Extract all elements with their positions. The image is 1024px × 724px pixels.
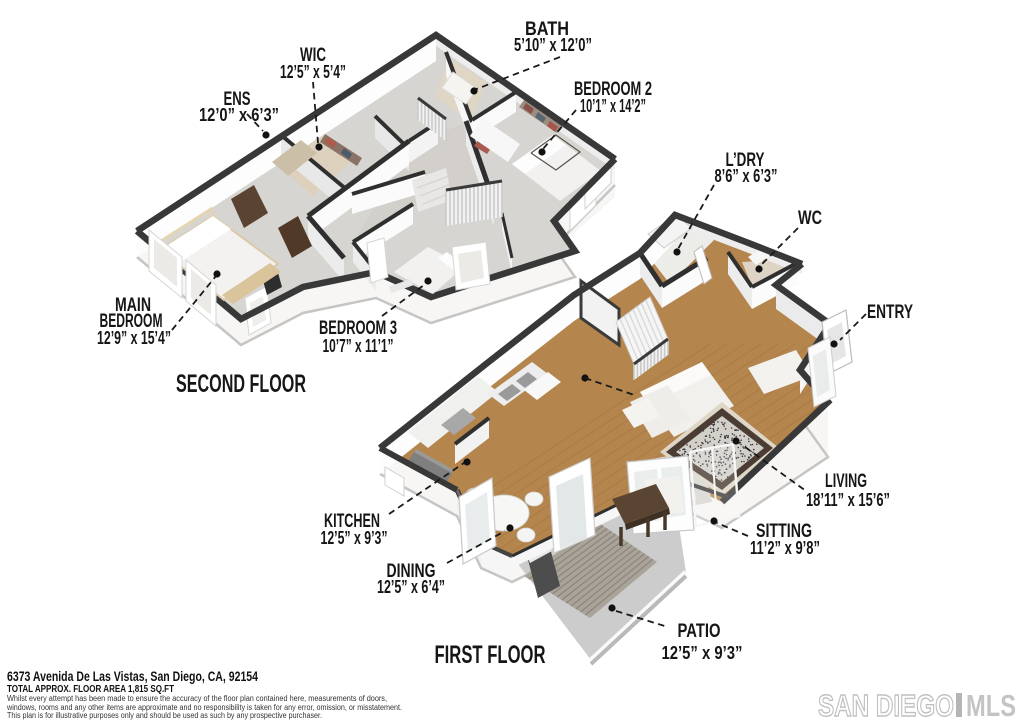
svg-text:PATIO: PATIO xyxy=(678,621,721,642)
svg-text:This plan is for illustrative: This plan is for illustrative purposes o… xyxy=(7,711,322,720)
svg-text:12’5” x 6’4”: 12’5” x 6’4” xyxy=(377,577,445,597)
svg-text:6373 Avenida De Las Vistas, Sa: 6373 Avenida De Las Vistas, San Diego, C… xyxy=(7,668,258,684)
svg-text:8’6” x 6’3”: 8’6” x 6’3” xyxy=(715,166,778,186)
svg-text:12’5” x 9’3”: 12’5” x 9’3” xyxy=(662,643,743,663)
svg-text:LIVING: LIVING xyxy=(825,471,867,492)
svg-text:FIRST FLOOR: FIRST FLOOR xyxy=(435,641,546,669)
svg-text:10’1” x 14’2”: 10’1” x 14’2” xyxy=(580,96,646,116)
svg-text:WC: WC xyxy=(798,208,822,229)
svg-text:ENTRY: ENTRY xyxy=(867,302,913,323)
svg-text:SAN DIEGO: SAN DIEGO xyxy=(818,688,954,723)
svg-text:18’11” x 15’6”: 18’11” x 15’6” xyxy=(806,490,890,510)
svg-text:10’7” x 11’1”: 10’7” x 11’1” xyxy=(323,336,394,356)
svg-text:MLS: MLS xyxy=(966,688,1016,723)
svg-text:12’0” x 6’3”: 12’0” x 6’3” xyxy=(199,105,279,125)
svg-text:12’5” x 9’3”: 12’5” x 9’3” xyxy=(321,528,388,548)
svg-text:Whilst every attempt has been: Whilst every attempt has been made to en… xyxy=(7,694,387,703)
svg-text:11’2” x 9’8”: 11’2” x 9’8” xyxy=(750,538,820,558)
svg-text:SECOND FLOOR: SECOND FLOOR xyxy=(176,370,306,398)
svg-text:12’5” x 5’4”: 12’5” x 5’4” xyxy=(280,62,346,82)
svg-text:12’9” x 15’4”: 12’9” x 15’4” xyxy=(97,328,171,348)
svg-text:5’10” x 12’0”: 5’10” x 12’0” xyxy=(514,35,592,55)
